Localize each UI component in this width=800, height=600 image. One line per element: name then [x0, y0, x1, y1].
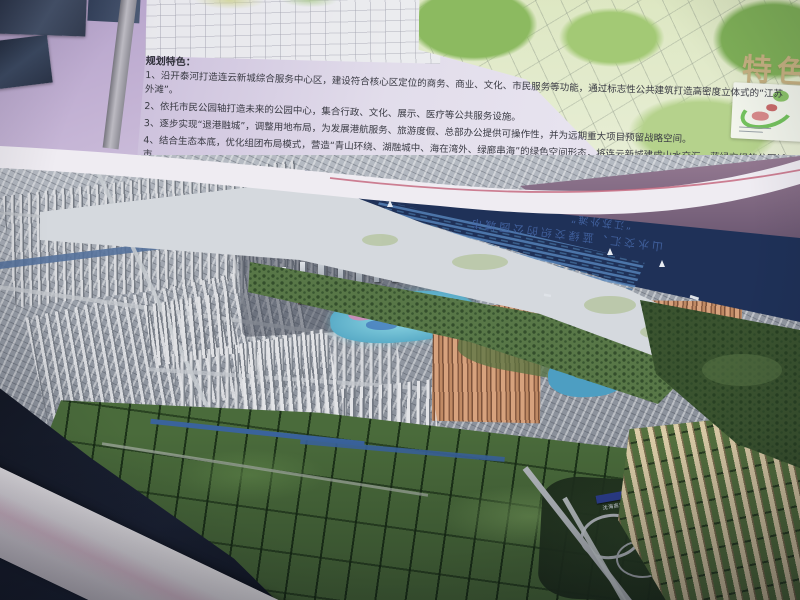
model-tower — [452, 265, 458, 284]
model-tower — [412, 255, 419, 282]
residential-cluster-salmon-2 — [640, 295, 745, 364]
model-tower — [356, 248, 364, 282]
model-tower — [282, 267, 288, 287]
model-tower — [300, 262, 307, 288]
exhibition-photo: 特色 规划特色： 1、沿开泰河打造连云新城综合服务中心区，建设符合核心区定位的商… — [0, 0, 800, 600]
model-tower — [262, 271, 268, 287]
model-tower — [470, 268, 476, 284]
lake-island — [572, 366, 595, 379]
photo-thumbnail-1 — [0, 0, 87, 37]
model-tower — [392, 259, 399, 282]
model-tower — [338, 258, 345, 283]
maroon-building-3 — [298, 295, 310, 304]
photo-thumbnail-2 — [0, 35, 53, 89]
model-tower — [318, 254, 326, 286]
maroon-building-1 — [328, 290, 343, 300]
lake-light-violet — [394, 311, 421, 324]
lake-light-blue — [366, 320, 397, 330]
model-tower — [374, 253, 381, 282]
model-tower — [432, 261, 438, 282]
